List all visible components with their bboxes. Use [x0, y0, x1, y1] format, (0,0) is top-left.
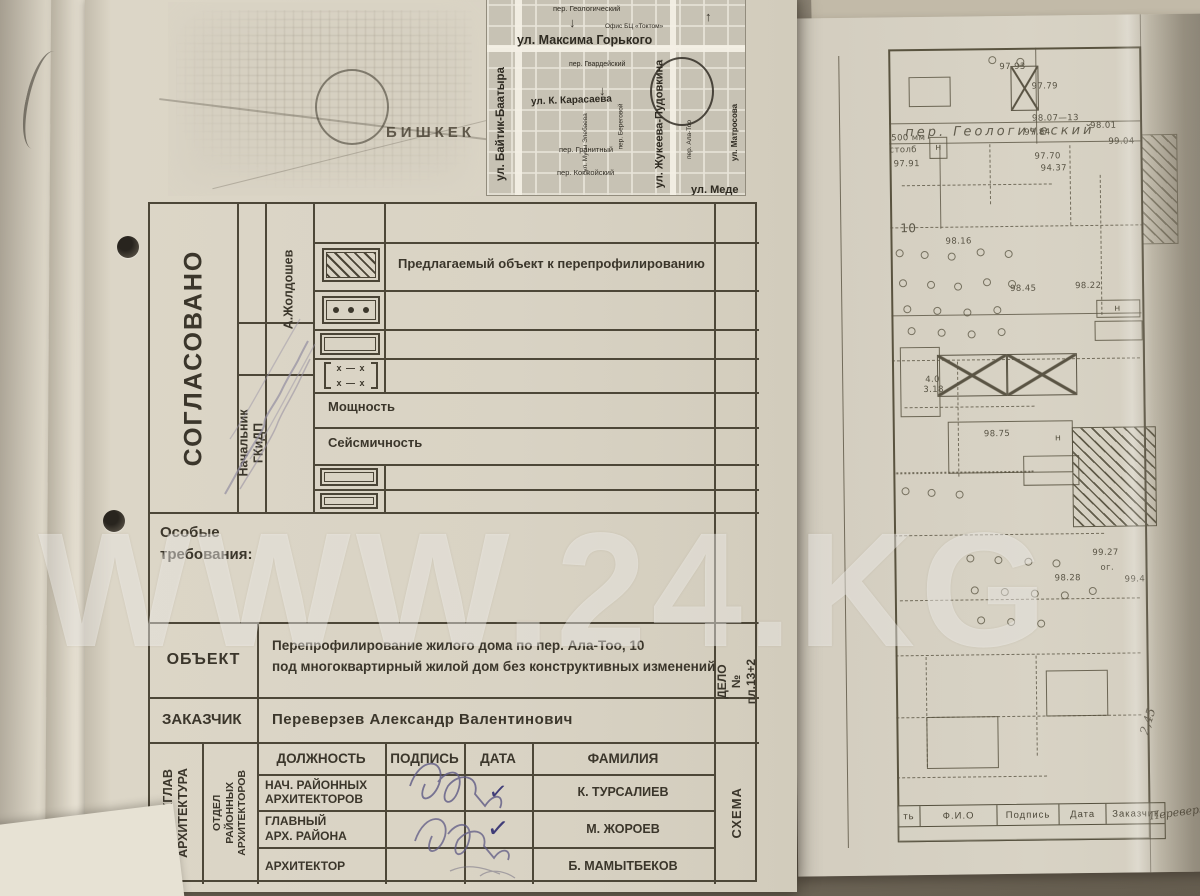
poi-label: Офис БЦ «Токтом»	[605, 23, 663, 30]
strip-cell: Ф.И.О	[920, 805, 998, 826]
city-map: БИШКЕК	[168, 2, 480, 196]
power-label: Мощность	[328, 399, 395, 414]
street-label: ул. Байтик-Баатыра	[495, 67, 507, 181]
street-label: ул. Матросова	[731, 103, 740, 160]
street-label: ул. Максима Горького	[517, 33, 652, 47]
case-number-label: ДЕЛО № пл.13+2	[715, 659, 758, 704]
street-label: ул. Мусы Элебаева	[582, 113, 589, 172]
elevation-label: 10	[900, 221, 916, 235]
elevation-label: 500 мм	[891, 133, 925, 143]
hole-punch	[117, 236, 139, 258]
customer-label: ЗАКАЗЧИК	[162, 697, 257, 742]
arrow-up-icon: ↑	[705, 9, 712, 24]
street-band	[515, 0, 522, 195]
district-map: ул. Максима Горького пер. Геологический …	[486, 0, 746, 196]
table-row-position: ГЛАВНЫЙ АРХ. РАЙОНА	[265, 810, 385, 847]
hatch-on-fold	[1141, 134, 1178, 244]
site-plan-sheet: пер. Геологический 97.9397.7998.07—1397.…	[788, 13, 1200, 876]
crossed-building-symbol	[1007, 353, 1078, 396]
photo-of-documents: БИШКЕК ул. Максима Горького пер. Геологи…	[0, 0, 1200, 896]
building-outline	[1046, 670, 1109, 717]
building-letter: н	[935, 143, 941, 153]
customer-value: Переверзев Александр Валентинович	[272, 711, 573, 728]
table-row-position: НАЧ. РАЙОННЫХ АРХИТЕКТОРОВ	[265, 774, 385, 810]
approval-form: СОГЛАСОВАНО Начальник ГКиДП А.Жолдошев Д…	[148, 202, 757, 882]
architect-signatures	[390, 746, 540, 881]
elevation-label: 98.07—13	[1032, 113, 1079, 124]
building-letter: н	[1114, 304, 1120, 314]
seismicity-label: Сейсмичность	[328, 435, 422, 450]
legend-xx-symbol: x — xx — x	[324, 362, 378, 389]
legend-dots-symbol	[322, 296, 380, 324]
street-label: пер. Геологический	[553, 4, 620, 13]
building-outline	[908, 77, 950, 108]
building-letter: н	[1055, 433, 1061, 443]
building-outline	[926, 716, 999, 769]
legend-proposed-object-label: Предлагаемый объект к перепрофилированию	[398, 256, 705, 271]
building-outline	[900, 347, 941, 417]
elevation-label: 98.22	[1075, 281, 1101, 291]
elevation-label: 97.84	[1024, 127, 1050, 137]
elevation-label: 98.45	[1010, 284, 1036, 294]
chief-signature	[210, 259, 330, 509]
scheme-label: СХЕМА	[729, 787, 745, 838]
strip-cell: Дата	[1059, 804, 1107, 825]
building-outline	[1094, 320, 1142, 341]
object-value: Перепрофилирование жилого дома по пер. А…	[272, 636, 715, 678]
building-outline	[1023, 455, 1079, 486]
department-label: ОТДЕЛ РАЙОННЫХ АРХИТЕКТОРОВ	[211, 770, 249, 856]
elevation-label: 98.28	[1055, 573, 1081, 583]
elevation-label: 94.37	[1041, 163, 1067, 173]
object-label: ОБЪЕКТ	[150, 622, 257, 697]
street-label: пер. Береговой	[618, 103, 625, 149]
strip-cell: ть	[898, 806, 920, 826]
street-label: пер. Гвардейский	[569, 61, 625, 68]
crossed-building-symbol	[937, 354, 1008, 397]
table-row-name: М. ЖОРОЕВ	[532, 810, 714, 847]
elevation-label: 99.04	[1108, 136, 1134, 146]
column-header-name: ФАМИЛИЯ	[532, 742, 714, 774]
elevation-label: 99.27	[1092, 548, 1118, 558]
table-row-name: К. ТУРСАЛИЕВ	[532, 774, 714, 810]
crossed-building-symbol	[1010, 66, 1039, 111]
city-map-location-circle	[315, 69, 389, 145]
elevation-label: 98.16	[945, 236, 971, 246]
elevation-label: 98.01	[1090, 121, 1116, 131]
strip-cell: Подпись	[998, 804, 1060, 825]
arrow-down-icon: ↓	[569, 15, 576, 30]
arrow-down-icon: ↓	[599, 83, 606, 98]
street-label: пер. Ала-Тоо	[686, 120, 693, 159]
hole-punch	[103, 510, 125, 532]
street-label: ул. Жукеева-Пудовкина	[653, 60, 665, 189]
left-document-sheet: БИШКЕК ул. Максима Горького пер. Геологи…	[85, 0, 797, 892]
table-row-name: Б. МАМЫТБЕКОВ	[532, 847, 714, 884]
elevation-label: столб	[889, 145, 917, 155]
legend-hatch-symbol	[322, 248, 380, 282]
elevation-label: 97.70	[1034, 151, 1060, 161]
plan-title-strip: ть Ф.И.О Подпись Дата Заказчик	[897, 802, 1165, 842]
elevation-label: 99.4	[1125, 574, 1146, 584]
approved-stamp-label: СОГЛАСОВАНО	[179, 250, 209, 467]
column-header-position: ДОЛЖНОСТЬ	[257, 742, 385, 774]
city-map-label: БИШКЕК	[386, 124, 475, 141]
special-requirements-label: Особые требования:	[160, 522, 252, 566]
table-row-position: АРХИТЕКТОР	[265, 847, 385, 884]
elevation-label: 97.91	[894, 159, 920, 169]
elevation-label: ог.	[1100, 563, 1114, 573]
